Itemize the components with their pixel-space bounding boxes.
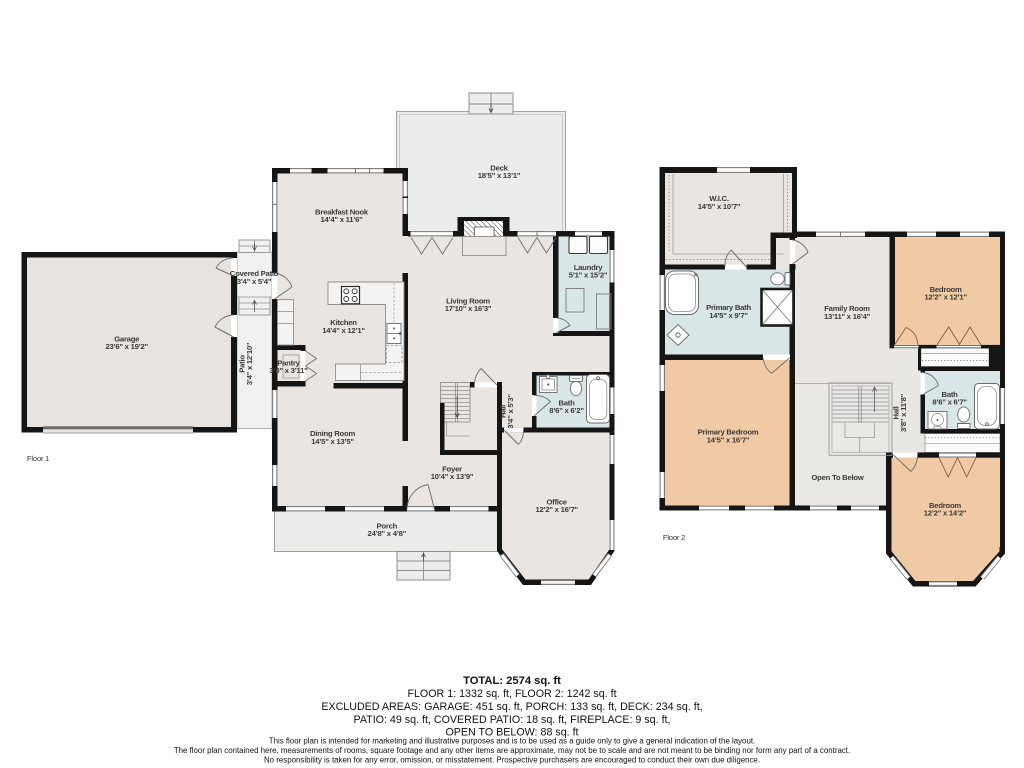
svg-text:23’6" x 19’2": 23’6" x 19’2": [105, 342, 148, 351]
svg-text:17’10" x 16’3": 17’10" x 16’3": [445, 304, 492, 313]
svg-text:No responsibility is taken for: No responsibility is taken for any error…: [264, 755, 760, 764]
svg-text:3’4" x 5’3": 3’4" x 5’3": [506, 394, 515, 429]
svg-text:Floor 1: Floor 1: [27, 454, 49, 463]
svg-text:Open To Below: Open To Below: [811, 473, 863, 482]
svg-text:18’5" x 13’1": 18’5" x 13’1": [478, 171, 521, 180]
svg-text:12’2" x 16’7": 12’2" x 16’7": [535, 505, 578, 514]
svg-text:FLOOR 1: 1332 sq. ft, FLOOR 2:: FLOOR 1: 1332 sq. ft, FLOOR 2: 1242 sq. …: [407, 688, 616, 700]
svg-text:14’5" x 10’7": 14’5" x 10’7": [698, 202, 741, 211]
svg-text:TOTAL: 2574 sq. ft: TOTAL: 2574 sq. ft: [463, 675, 561, 687]
svg-text:PATIO: 49 sq. ft, COVERED PATI: PATIO: 49 sq. ft, COVERED PATIO: 18 sq. …: [354, 714, 671, 726]
svg-text:12’2" x 14’2": 12’2" x 14’2": [924, 509, 967, 518]
svg-text:13’11" x 16’4": 13’11" x 16’4": [824, 312, 871, 321]
svg-text:The floor plan contained here,: The floor plan contained here, measureme…: [174, 746, 850, 755]
svg-text:3’8" x 11’8": 3’8" x 11’8": [899, 393, 908, 432]
svg-text:8’6" x 6’7": 8’6" x 6’7": [932, 397, 967, 406]
svg-text:EXCLUDED AREAS: GARAGE: 451 sq: EXCLUDED AREAS: GARAGE: 451 sq. ft, PORC…: [321, 701, 702, 713]
svg-text:24’8" x 4’8": 24’8" x 4’8": [368, 529, 407, 538]
svg-text:3’4" x 5’4": 3’4" x 5’4": [237, 277, 272, 286]
svg-text:10’4" x 13’9": 10’4" x 13’9": [431, 472, 474, 481]
svg-text:This floor plan is intended fo: This floor plan is intended for marketin…: [269, 737, 755, 746]
svg-text:5’1" x 15’2": 5’1" x 15’2": [569, 270, 608, 279]
svg-text:12’2" x 12’1": 12’2" x 12’1": [924, 293, 967, 302]
svg-text:14’5" x 13’5": 14’5" x 13’5": [311, 437, 354, 446]
svg-text:14’4" x 12’1": 14’4" x 12’1": [322, 326, 365, 335]
svg-text:Floor 2: Floor 2: [663, 533, 685, 542]
svg-text:3’4" x 12’10": 3’4" x 12’10": [245, 342, 254, 385]
svg-text:14’5" x 16’7": 14’5" x 16’7": [707, 435, 750, 444]
svg-text:8’6" x 6’2": 8’6" x 6’2": [549, 406, 584, 415]
svg-text:14’4" x 11’6": 14’4" x 11’6": [320, 215, 363, 224]
svg-text:14’5" x 9’7": 14’5" x 9’7": [709, 311, 748, 320]
svg-text:3’0" x 3’11": 3’0" x 3’11": [269, 366, 308, 375]
